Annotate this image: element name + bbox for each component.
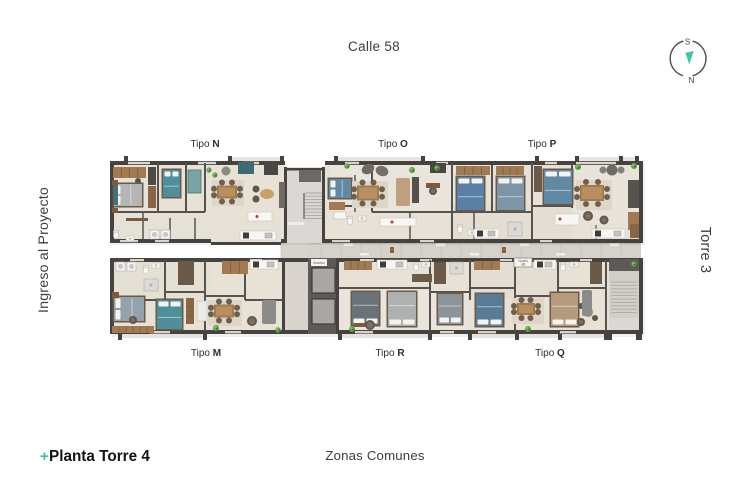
svg-text:Planta Torre 4: Planta Torre 4 [49,448,150,465]
svg-text:Tipo O: Tipo O [378,139,408,150]
svg-text:Acceso: Acceso [313,261,325,265]
svg-text:S: S [685,37,690,46]
svg-text:N: N [689,76,695,85]
svg-text:Tipo N: Tipo N [190,139,219,150]
svg-text:Ingreso al Proyecto: Ingreso al Proyecto [36,187,52,313]
svg-text:Tipo P: Tipo P [528,139,557,150]
svg-text:+: + [40,448,49,465]
svg-text:Torre 3: Torre 3 [697,227,713,274]
svg-text:Zonas Comunes: Zonas Comunes [325,448,425,463]
svg-text:Tipo Q: Tipo Q [535,348,565,359]
svg-text:útil: útil [521,263,525,267]
svg-text:Tipo R: Tipo R [375,348,405,359]
svg-text:Tipo M: Tipo M [191,348,221,359]
svg-text:Calle 58: Calle 58 [348,39,400,54]
